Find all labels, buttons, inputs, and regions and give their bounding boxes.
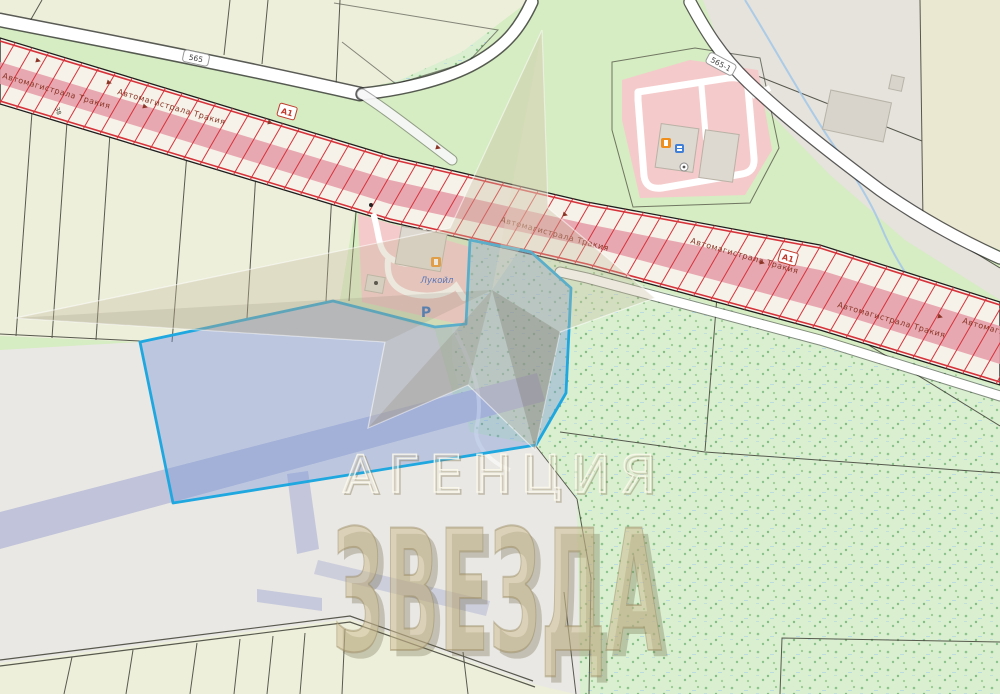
info-icon [680, 163, 688, 171]
farmland-strip-east [920, 0, 1000, 250]
fuel-station-icon [661, 138, 671, 148]
watermark-line2: ЗВЕЗДА [332, 494, 662, 690]
services-icon [675, 144, 684, 153]
poi-dot [369, 203, 373, 207]
cadastral-map[interactable]: Лукойл Р Автомагистрала Тракия Автомагис… [0, 0, 1000, 694]
map-canvas[interactable]: Лукойл Р Автомагистрала Тракия Автомагис… [0, 0, 1000, 694]
